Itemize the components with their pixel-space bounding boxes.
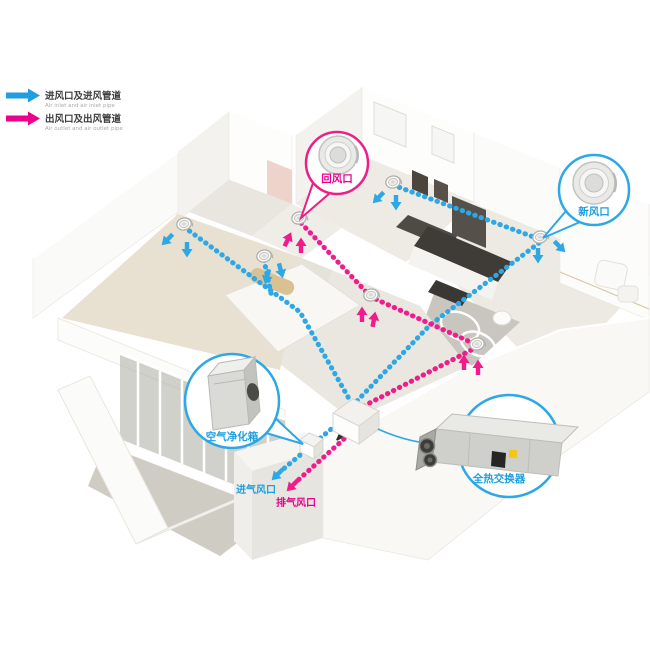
round-diffuser-icon	[573, 162, 616, 204]
return-air-label: 回风口	[321, 173, 353, 185]
inlet-arrow-icon	[6, 89, 40, 103]
round-diffuser-icon	[319, 136, 358, 174]
legend-outlet-en: Air outlet and air outlet pipe	[45, 126, 123, 132]
heat-exchanger-label: 全热交换器	[472, 472, 526, 485]
ventilation-system-diagram: 回风口 新风口 空气净化箱	[0, 0, 650, 656]
intake-vent-label: 进气风口	[236, 483, 276, 496]
purifier-box-icon	[208, 357, 260, 430]
air-purifier-label: 空气净化箱	[206, 430, 259, 443]
fresh-air-label: 新风口	[578, 205, 610, 218]
toilet	[493, 311, 511, 325]
legend-inlet-cn: 进风口及进风管道	[45, 90, 122, 102]
entry-block	[234, 452, 252, 560]
exhaust-vent-label: 排气风口	[276, 496, 316, 509]
legend-inlet-en: Air inlet and air inlet pipe	[45, 103, 115, 109]
diagram-canvas: 回风口 新风口 空气净化箱	[0, 0, 650, 656]
legend-outlet-cn: 出风口及出风管道	[45, 113, 122, 125]
side-table	[618, 286, 638, 302]
legend: 进风口及进风管道 Air inlet and air inlet pipe 出风…	[6, 89, 123, 133]
outlet-arrow-icon	[6, 112, 40, 126]
